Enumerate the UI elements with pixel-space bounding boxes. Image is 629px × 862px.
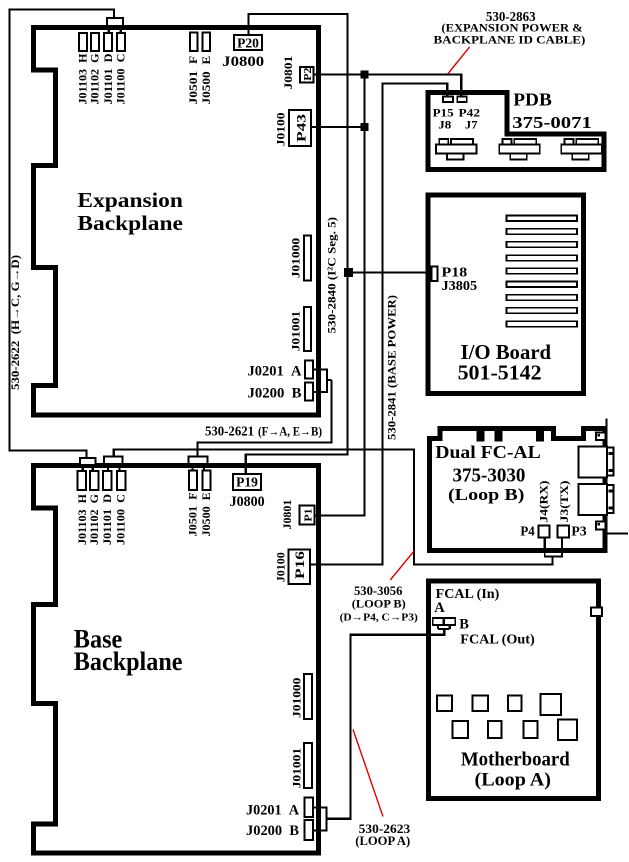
svg-text:J01103 H: J01103 H xyxy=(77,494,89,545)
svg-text:J7: J7 xyxy=(465,120,478,132)
svg-text:J0201 A: J0201 A xyxy=(246,803,299,819)
svg-text:J0500 E: J0500 E xyxy=(201,492,213,537)
svg-text:J01000: J01000 xyxy=(291,238,303,279)
svg-text:J0500 E: J0500 E xyxy=(201,55,213,104)
svg-text:J01101 D: J01101 D xyxy=(103,54,115,105)
svg-text:P2: P2 xyxy=(302,67,314,81)
svg-text:(Loop A): (Loop A) xyxy=(475,770,552,791)
svg-text:Backplane: Backplane xyxy=(74,647,183,676)
svg-text:J3805: J3805 xyxy=(442,279,478,294)
svg-text:P15: P15 xyxy=(433,106,454,120)
svg-text:J4(RX): J4(RX) xyxy=(537,481,551,523)
svg-text:J0100: J0100 xyxy=(275,552,287,582)
svg-text:J0200 B: J0200 B xyxy=(246,823,299,839)
svg-text:P3: P3 xyxy=(571,524,586,539)
svg-text:J01000: J01000 xyxy=(292,677,304,718)
svg-text:530-2621: 530-2621 xyxy=(205,425,254,440)
svg-text:P1: P1 xyxy=(303,509,315,522)
svg-text:FCAL (Out): FCAL (Out) xyxy=(460,633,535,648)
svg-text:(EXPANSION POWER &: (EXPANSION POWER & xyxy=(441,22,583,35)
svg-text:J8: J8 xyxy=(438,120,451,132)
svg-text:Backplane: Backplane xyxy=(77,211,182,235)
svg-text:530-2622 (H→C, G→D): 530-2622 (H→C, G→D) xyxy=(10,255,22,390)
svg-text:J3(TX): J3(TX) xyxy=(557,481,571,523)
svg-text:J01102 G: J01102 G xyxy=(90,53,102,104)
svg-text:(LOOP B): (LOOP B) xyxy=(352,596,406,610)
svg-text:J0800: J0800 xyxy=(230,494,265,510)
svg-text:375-0071: 375-0071 xyxy=(512,113,592,132)
svg-text:J0801: J0801 xyxy=(282,499,294,529)
svg-text:J01102 G: J01102 G xyxy=(89,494,101,545)
svg-text:J0800: J0800 xyxy=(222,54,264,70)
svg-text:375-3030: 375-3030 xyxy=(453,466,526,487)
svg-text:J0501 F: J0501 F xyxy=(188,56,200,105)
svg-text:(Loop B): (Loop B) xyxy=(448,485,524,504)
svg-text:PDB: PDB xyxy=(513,89,552,109)
svg-text:(F→A, E→B): (F→A, E→B) xyxy=(258,425,322,439)
svg-text:Motherboard: Motherboard xyxy=(461,749,570,770)
svg-text:530-2841 (BASE POWER): 530-2841 (BASE POWER) xyxy=(387,295,399,440)
svg-text:Dual FC-AL: Dual FC-AL xyxy=(435,442,540,462)
svg-text:B: B xyxy=(459,617,469,633)
svg-text:J0501 F: J0501 F xyxy=(188,492,200,536)
svg-text:J0200 B: J0200 B xyxy=(248,386,302,402)
svg-text:J0801: J0801 xyxy=(283,55,295,89)
svg-text:530-2840 (I²C Seg. 5): 530-2840 (I²C Seg. 5) xyxy=(327,217,339,334)
svg-text:P20: P20 xyxy=(237,36,259,51)
svg-text:J01100 C: J01100 C xyxy=(116,494,128,545)
svg-text:P42: P42 xyxy=(459,106,481,120)
svg-text:J0100: J0100 xyxy=(275,112,287,146)
svg-text:J01101 D: J01101 D xyxy=(102,494,114,545)
svg-text:(LOOP A): (LOOP A) xyxy=(355,834,410,848)
svg-text:P19: P19 xyxy=(236,475,258,490)
svg-text:A: A xyxy=(434,600,445,616)
svg-text:BACKPLANE ID CABLE): BACKPLANE ID CABLE) xyxy=(434,34,586,47)
svg-text:(D→P4, C→P3): (D→P4, C→P3) xyxy=(340,611,419,623)
svg-text:J0201 A: J0201 A xyxy=(248,363,302,379)
svg-text:J01001: J01001 xyxy=(292,748,304,789)
svg-text:J01103 H: J01103 H xyxy=(78,53,90,104)
svg-text:Expansion: Expansion xyxy=(77,188,183,212)
svg-text:FCAL (In): FCAL (In) xyxy=(436,587,500,602)
svg-text:501-5142: 501-5142 xyxy=(458,360,542,384)
svg-text:P43: P43 xyxy=(294,114,308,142)
svg-text:J01100 C: J01100 C xyxy=(116,54,128,105)
svg-text:P16: P16 xyxy=(293,551,307,579)
svg-text:J01001: J01001 xyxy=(291,311,303,352)
svg-text:P4: P4 xyxy=(520,524,534,539)
